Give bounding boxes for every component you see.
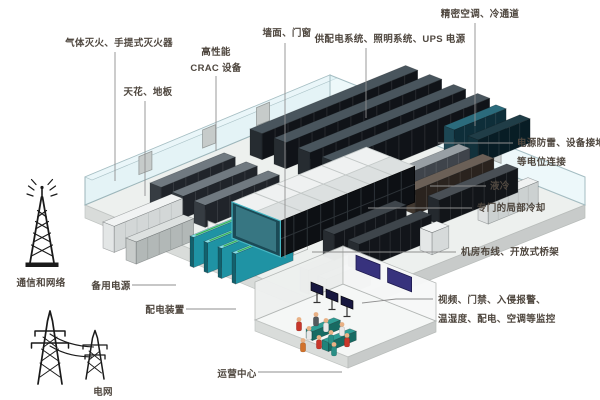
person-figure <box>323 318 328 332</box>
label-backup-power: 备用电源 <box>90 280 130 292</box>
crac-floor-unit <box>420 221 449 255</box>
label-power-distribution: 配电装置 <box>145 304 184 316</box>
label-communication-network: 通信和网络 <box>16 277 65 289</box>
label-liquid-cooling: 液冷 <box>490 180 510 192</box>
label-surge-protection-grounding: 电源防雷、设备接地、等电位连接 <box>516 137 600 168</box>
datacenter-diagram: 气体灭火、手提式灭火器天花、地板高性能CRAC 设备墙面、门窗供配电系统、照明系… <box>0 0 600 400</box>
label-power-grid: 电网 <box>93 386 113 398</box>
label-crac-unit: 高性能CRAC 设备 <box>190 46 241 74</box>
label-dedicated-local-cooling: 专门的局部冷却 <box>477 202 546 214</box>
person-figure <box>316 335 321 349</box>
label-power-lighting-ups: 供配电系统、照明系统、UPS 电源 <box>314 33 466 45</box>
label-monitoring-systems: 视频、门禁、入侵报警、温湿度、配电、空调等监控 <box>438 294 556 325</box>
diagram-canvas: 气体灭火、手提式灭火器天花、地板高性能CRAC 设备墙面、门窗供配电系统、照明系… <box>0 0 600 400</box>
power-grid-pylon-icon <box>32 311 108 384</box>
label-cabling-open-tray: 机房布线、开放式桥架 <box>461 246 559 258</box>
label-ceiling-floor: 天花、地板 <box>123 86 172 98</box>
label-gas-fire-suppression: 气体灭火、手提式灭火器 <box>64 37 173 49</box>
label-precision-ac-cold-aisle: 精密空调、冷通道 <box>441 8 520 20</box>
person-figure <box>331 342 336 356</box>
person-figure <box>339 322 344 336</box>
person-figure <box>328 330 333 344</box>
label-walls-doors-windows: 墙面、门窗 <box>262 27 311 39</box>
person-figure <box>306 326 311 340</box>
person-figure <box>300 338 305 352</box>
person-figure <box>344 333 349 347</box>
person-figure <box>313 312 318 326</box>
communication-tower-icon <box>26 180 59 268</box>
label-operations-center: 运营中心 <box>217 368 256 380</box>
person-figure <box>296 317 301 331</box>
